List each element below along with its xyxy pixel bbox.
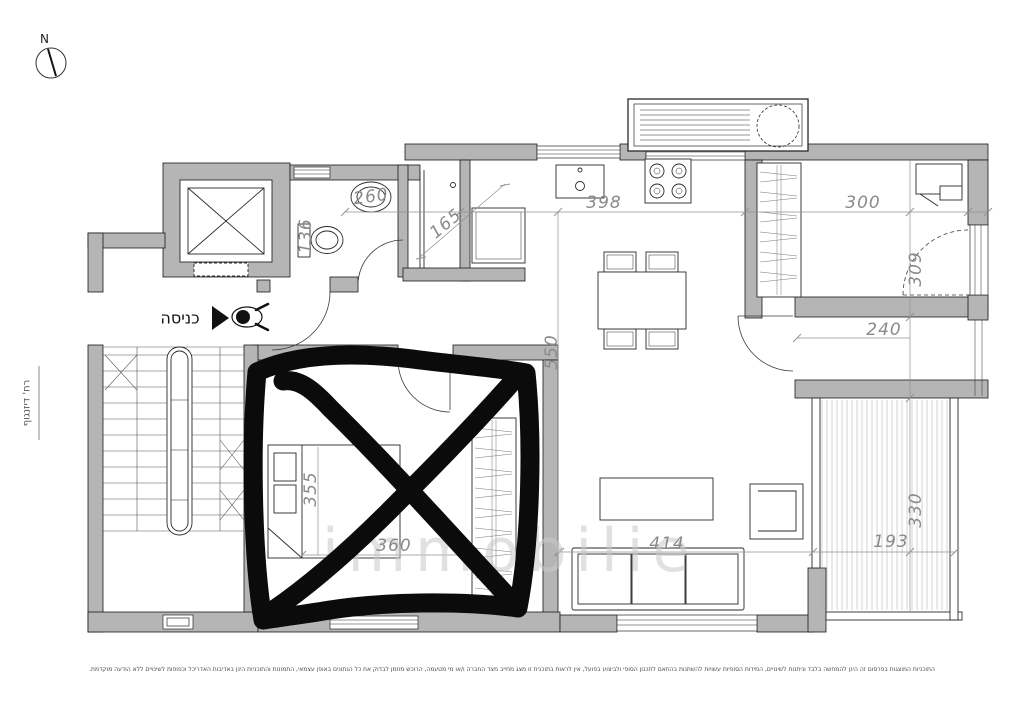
entry-door-arc bbox=[272, 292, 330, 350]
dim-bed-depth: 355 bbox=[301, 471, 321, 506]
dim-bed-width: 360 bbox=[376, 536, 411, 556]
dim-kitchen-width: 398 bbox=[586, 193, 621, 213]
kitchen-fixtures bbox=[472, 159, 691, 263]
person-icon bbox=[232, 304, 268, 330]
shower-head-icon bbox=[451, 183, 456, 188]
dim-sofa-width: 414 bbox=[649, 534, 684, 554]
compass-north-label: N bbox=[40, 32, 50, 46]
floor-plan-canvas: immobilie N כניסה רח' דיזנגוף 260 136 16… bbox=[0, 0, 1024, 711]
compass bbox=[36, 48, 66, 78]
disclaimer-text: התוכניות המוצגות בפרסום זה הינן להמחשה ב… bbox=[10, 666, 1014, 673]
dim-room-width: 240 bbox=[866, 320, 901, 340]
compass-needle bbox=[48, 49, 56, 76]
bedroom-furniture bbox=[916, 164, 962, 206]
dim-bedroom-width: 300 bbox=[845, 193, 880, 213]
service-balcony bbox=[628, 99, 808, 151]
bathroom-fixtures bbox=[298, 170, 456, 268]
coffee-table bbox=[600, 478, 713, 520]
floor-plan-drawing bbox=[0, 0, 1024, 711]
room-door-arc bbox=[738, 316, 793, 371]
street-label: רח' דיזנגוף bbox=[22, 380, 33, 427]
compass-circle bbox=[36, 48, 66, 78]
stair-railing bbox=[167, 347, 192, 535]
dining-set bbox=[598, 252, 686, 349]
entrance-label: כניסה bbox=[160, 309, 199, 328]
balcony-decking bbox=[812, 398, 962, 620]
dim-balcony-width: 193 bbox=[873, 532, 908, 552]
entrance-marker bbox=[212, 304, 268, 330]
dim-balcony-depth: 330 bbox=[906, 492, 926, 527]
dim-wc: 136 bbox=[296, 218, 316, 253]
wc-door-arc bbox=[358, 240, 403, 285]
entrance-arrow-icon bbox=[212, 306, 229, 330]
dim-bedroom-depth: 309 bbox=[906, 251, 926, 286]
elevator bbox=[180, 180, 272, 276]
bedroom2-door-arc bbox=[398, 360, 450, 412]
dining-table bbox=[598, 272, 686, 329]
dim-living-length: 550 bbox=[542, 334, 562, 369]
